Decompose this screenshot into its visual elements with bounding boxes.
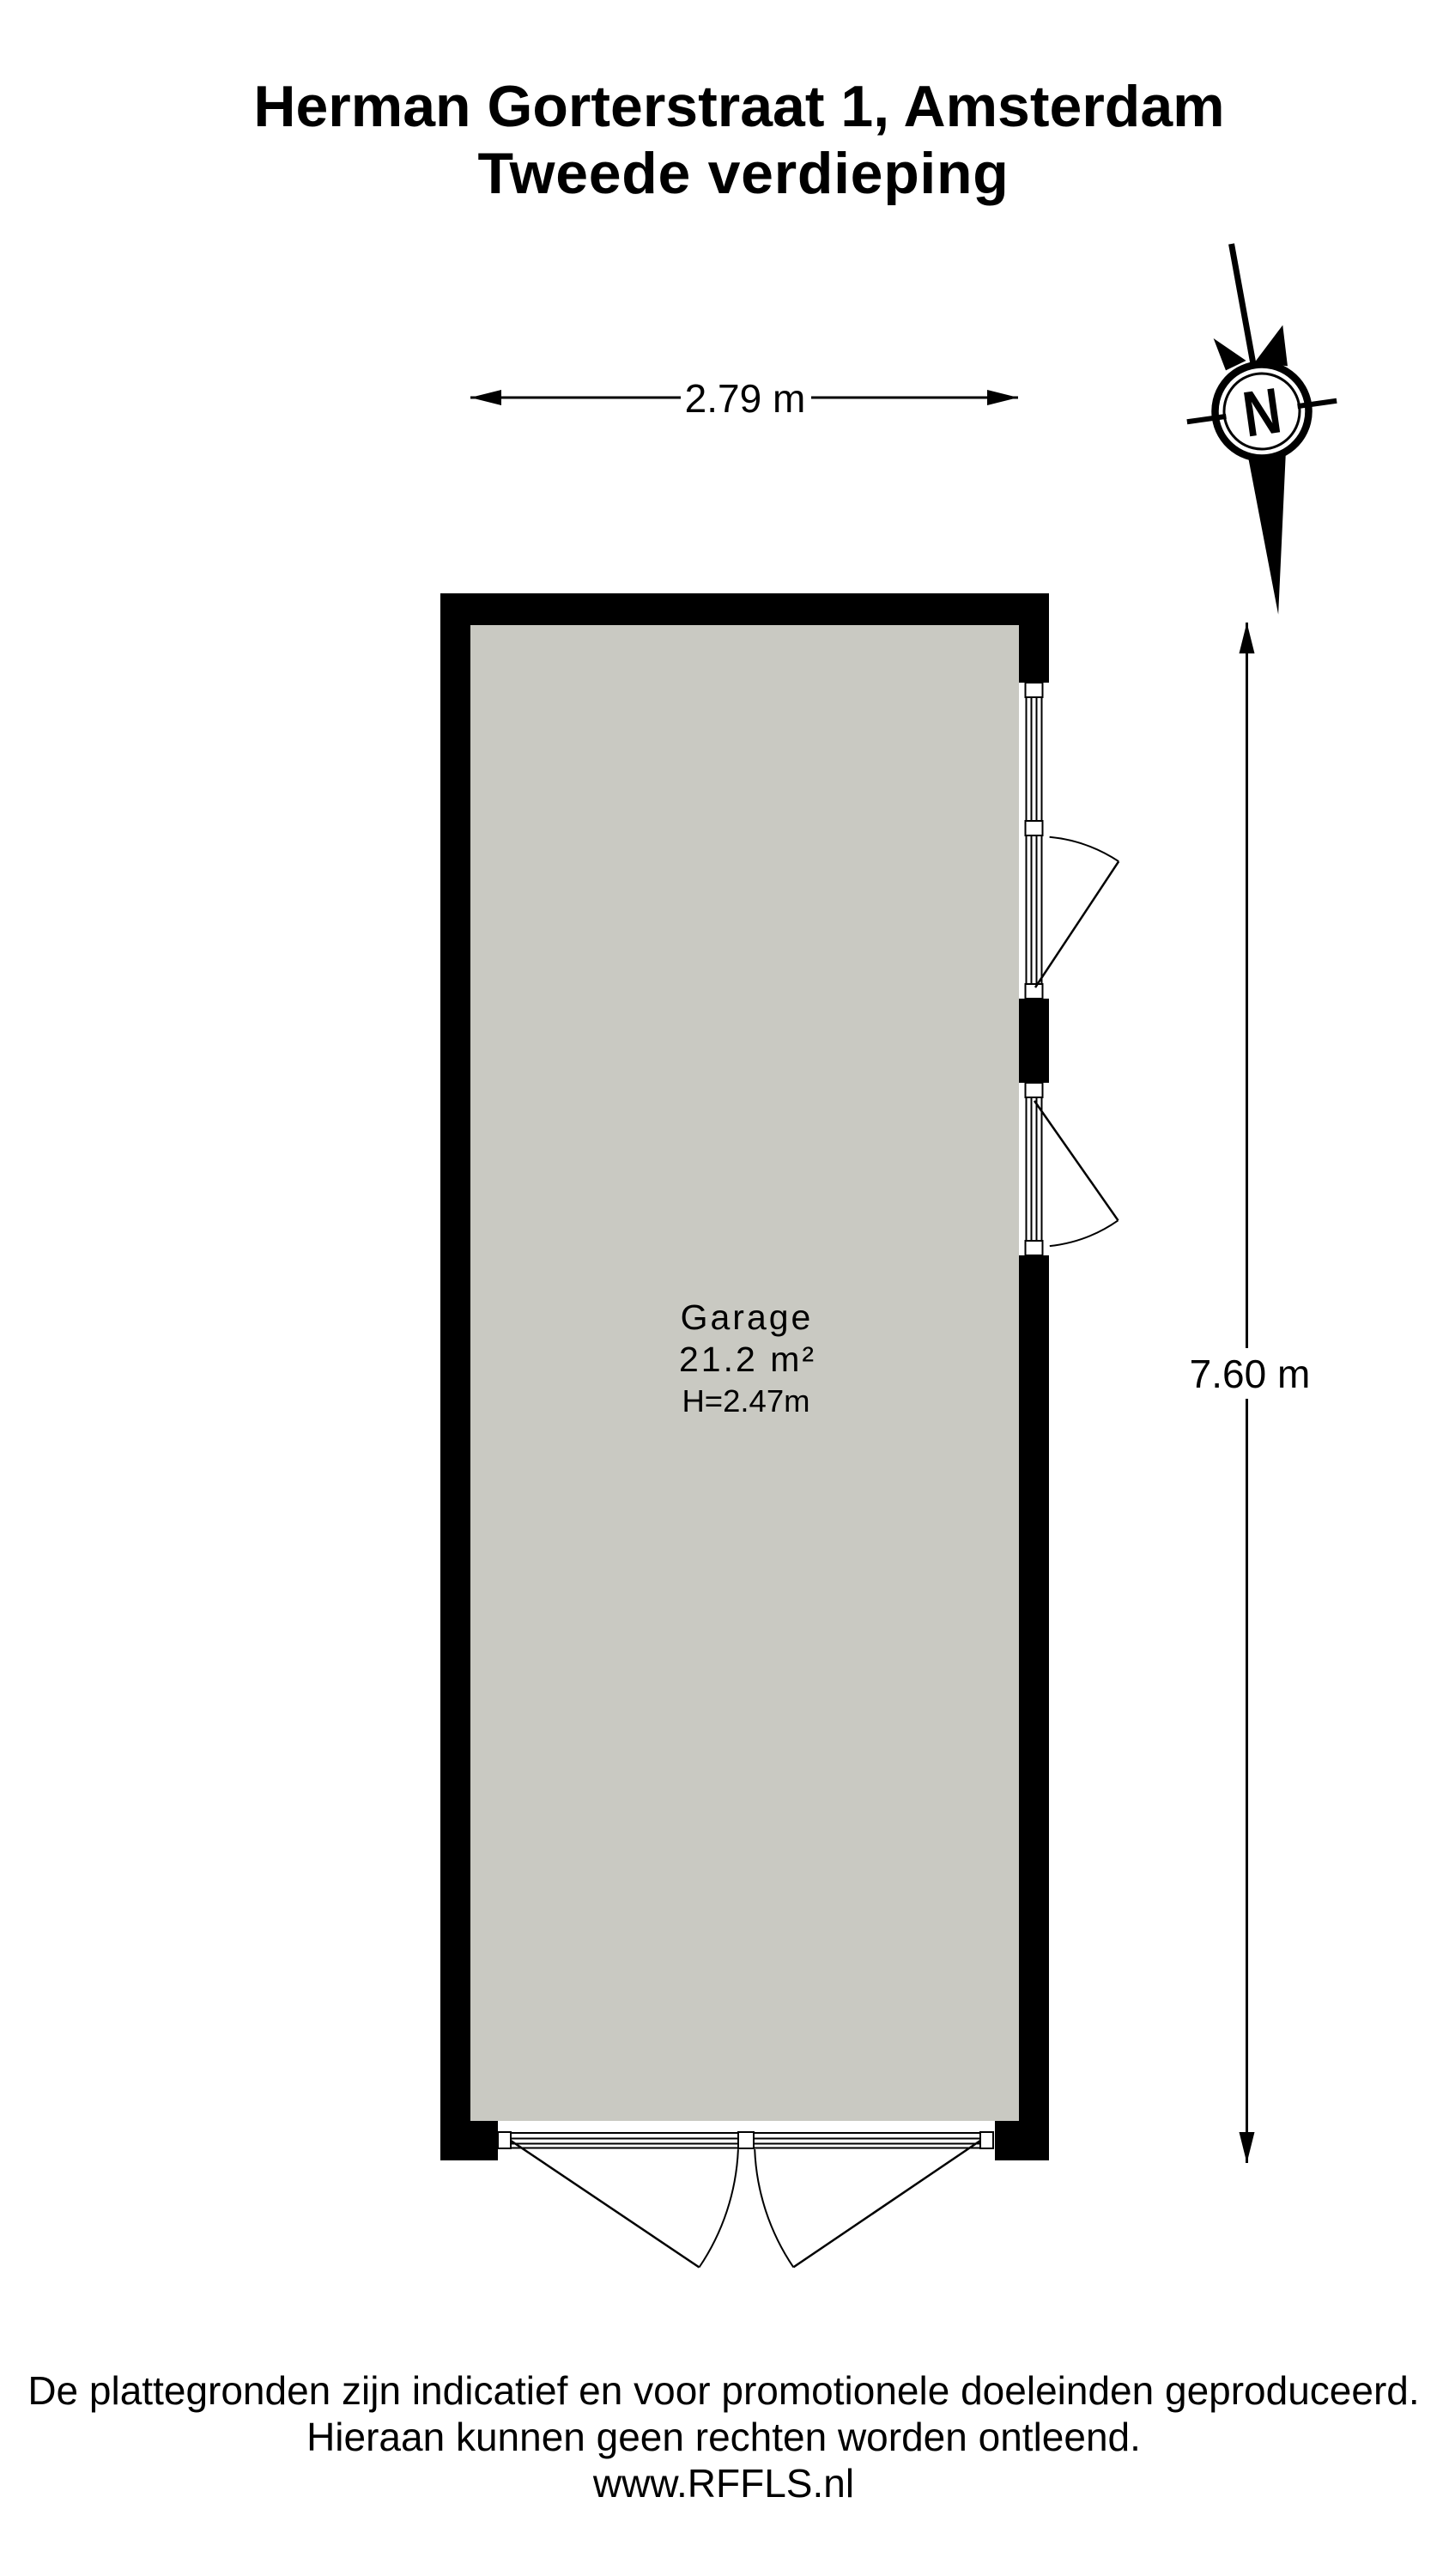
svg-text:Herman Gorterstraat 1, Amsterd: Herman Gorterstraat 1, Amsterdam — [253, 74, 1224, 139]
svg-text:Hieraan kunnen geen rechten wo: Hieraan kunnen geen rechten worden ontle… — [306, 2415, 1141, 2459]
svg-text:2.79 m: 2.79 m — [685, 376, 806, 421]
svg-text:21.2 m²: 21.2 m² — [679, 1340, 816, 1379]
svg-text:H=2.47m: H=2.47m — [682, 1383, 809, 1419]
svg-text:Tweede verdieping: Tweede verdieping — [477, 141, 1009, 206]
svg-text:De plattegronden zijn indicati: De plattegronden zijn indicatief en voor… — [27, 2368, 1419, 2413]
svg-text:www.RFFLS.nl: www.RFFLS.nl — [592, 2461, 854, 2506]
svg-text:Garage: Garage — [681, 1297, 814, 1337]
svg-text:7.60 m: 7.60 m — [1190, 1352, 1311, 1396]
